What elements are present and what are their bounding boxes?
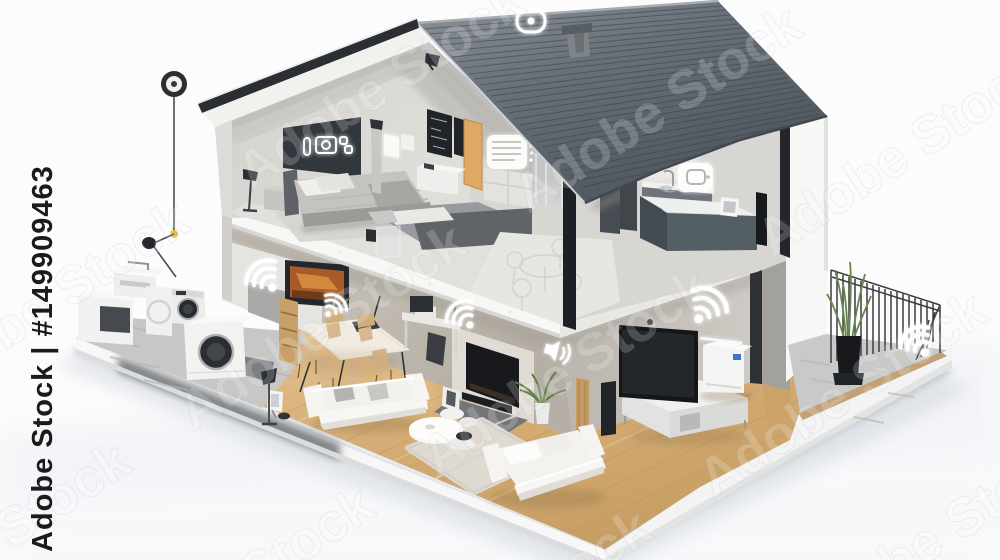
- svg-text:Adobe Stock | #149909463: Adobe Stock | #149909463: [27, 165, 59, 552]
